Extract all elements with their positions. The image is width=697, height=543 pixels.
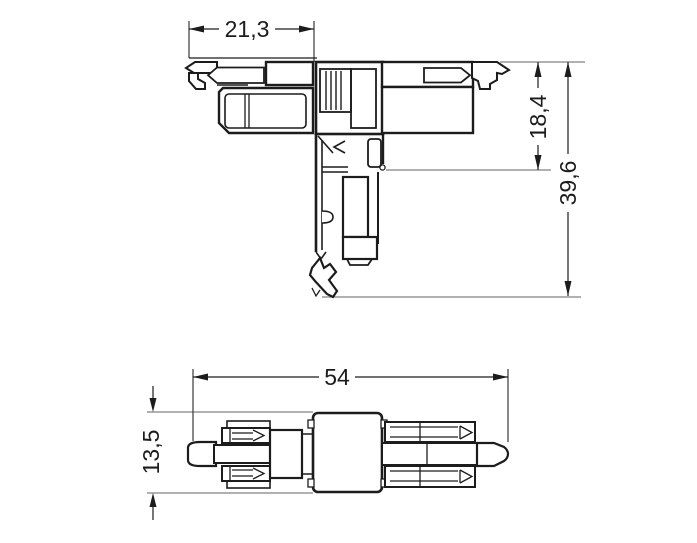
dim-label-side-length: 54 [324,364,350,390]
right-body-block [382,87,473,133]
arrow-up-icon [565,62,572,77]
side-center-tab-bl [308,479,314,487]
arrow-left-icon [193,374,208,381]
arrow-down-icon [565,281,572,296]
dim-label-front-depth-upper: 18,4 [525,94,551,139]
side-left-pin [188,442,216,466]
side-left-insert [270,430,302,478]
side-center-block [313,413,382,492]
arrow-right-icon [493,374,508,381]
right-latch-hook [472,62,509,89]
front-view [186,58,509,297]
side-right-pin [477,443,508,466]
left-pin-housing [266,62,313,85]
side-left-shaft [214,445,270,463]
arrow-up-icon [150,493,157,507]
dim-label-front-depth-total: 39,6 [555,161,581,206]
arrow-down-icon [150,398,157,412]
branch-step-lines [322,167,348,172]
branch-bottom-tip-chevron [312,288,320,296]
dimension-184: 18,4 [525,62,551,170]
left-contact-pin [208,68,264,84]
connector-dimension-drawing: 21,3 18,4 39,6 54 13,5 [0,0,697,543]
side-center-tab-tl [308,420,314,428]
branch-junction-chevron [334,141,345,153]
branch-latch-bump [322,211,333,223]
side-right-shaft [382,443,477,465]
side-left-step-bottom [227,481,270,488]
side-view [188,413,508,492]
arrow-up-icon [535,62,542,77]
technical-drawing-canvas: 21,3 18,4 39,6 54 13,5 [0,0,697,543]
dimension-396: 39,6 [555,62,581,296]
branch-plug-base [343,237,377,259]
left-latch-hook [189,73,205,89]
right-contact-pin [424,68,470,83]
branch [310,134,381,297]
branch-plug-cavity [343,177,368,237]
dim-label-front-width: 21,3 [225,16,270,42]
arrow-right-icon [299,26,314,33]
arrow-down-icon [535,155,542,170]
arrow-left-icon [189,26,204,33]
dim-label-side-height: 13,5 [138,430,164,475]
branch-side-pocket [368,139,381,167]
dimension-213: 21,3 [189,16,314,42]
side-left-connectors [302,434,313,474]
branch-junction-diagonal [318,136,333,153]
side-left-step-top [227,421,270,428]
side-right-block-top [385,422,475,442]
dimension-54: 54 [193,364,508,390]
dimension-135: 13,5 [138,386,164,520]
side-right-block-bottom [385,466,475,487]
